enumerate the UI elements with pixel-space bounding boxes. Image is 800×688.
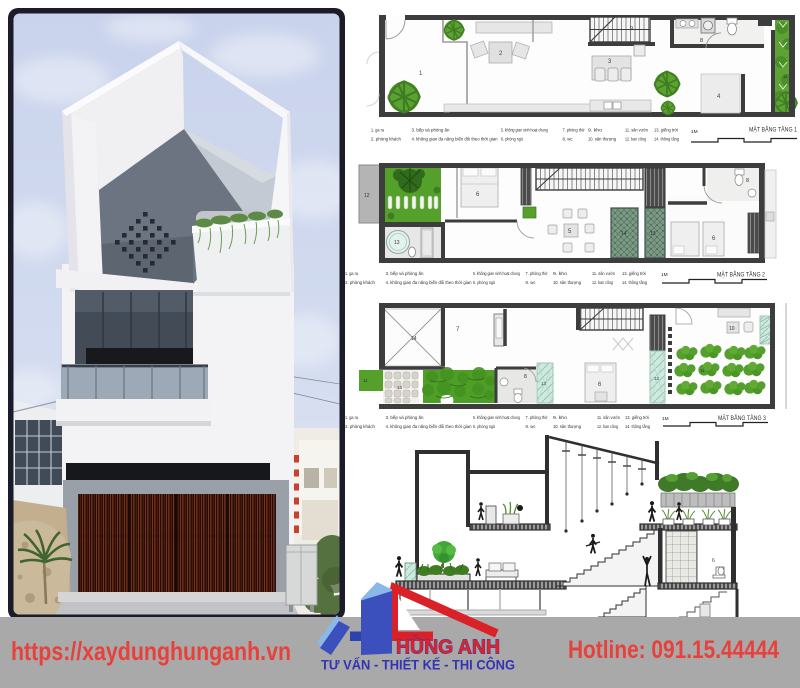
- svg-text:5. không gian sinh hoạt chung: 5. không gian sinh hoạt chung: [501, 128, 549, 133]
- svg-text:2. phòng khách: 2. phòng khách: [345, 424, 376, 429]
- svg-text:3. bếp và phòng ăn: 3. bếp và phòng ăn: [386, 271, 425, 276]
- svg-text:7. phòng thờ: 7. phòng thờ: [526, 415, 548, 420]
- svg-text:1. ga ra: 1. ga ra: [345, 271, 359, 276]
- svg-text:8: 8: [746, 178, 749, 184]
- svg-text:13: 13: [541, 381, 547, 386]
- svg-text:13. giếng trời: 13. giếng trời: [622, 271, 646, 276]
- svg-text:14. thông tầng: 14. thông tầng: [625, 424, 651, 429]
- svg-text:11. sân vườn: 11. sân vườn: [625, 128, 649, 133]
- svg-text:13: 13: [397, 385, 403, 390]
- svg-text:13. giếng trời: 13. giếng trời: [654, 128, 678, 133]
- svg-text:https://xaydunghunganh.vn: https://xaydunghunganh.vn: [11, 636, 291, 666]
- svg-text:4. không gian đa năng biến đổi: 4. không gian đa năng biến đổi theo thời…: [386, 424, 473, 429]
- svg-text:7. phòng thờ: 7. phòng thờ: [526, 271, 548, 276]
- svg-text:1M: 1M: [691, 129, 698, 135]
- svg-text:3. bếp và phòng ăn: 3. bếp và phòng ăn: [412, 128, 451, 133]
- svg-text:HÙNG ANH: HÙNG ANH: [396, 635, 500, 659]
- svg-text:11: 11: [700, 368, 705, 373]
- svg-text:14: 14: [411, 336, 417, 342]
- svg-text:14. thông tầng: 14. thông tầng: [622, 280, 648, 285]
- svg-text:11. sân vườn: 11. sân vườn: [597, 415, 621, 420]
- svg-text:8: 8: [524, 374, 527, 380]
- svg-text:6. phòng ngủ: 6. phòng ngủ: [501, 137, 524, 142]
- svg-text:8. wc: 8. wc: [526, 424, 536, 429]
- svg-text:14. thông tầng: 14. thông tầng: [654, 137, 680, 142]
- svg-text:10. sân thượng: 10. sân thượng: [553, 424, 582, 429]
- svg-text:5. không gian sinh hoạt chung: 5. không gian sinh hoạt chung: [473, 415, 521, 420]
- svg-text:6. phòng ngủ: 6. phòng ngủ: [473, 280, 496, 285]
- svg-text:12. ban công: 12. ban công: [597, 424, 619, 429]
- svg-text:5. không gian sinh hoạt chung: 5. không gian sinh hoạt chung: [473, 271, 521, 276]
- svg-text:8. wc: 8. wc: [526, 280, 536, 285]
- svg-text:10: 10: [729, 326, 735, 332]
- svg-text:11. sân vườn: 11. sân vườn: [592, 271, 616, 276]
- svg-text:9: 9: [630, 26, 633, 32]
- svg-text:13: 13: [654, 376, 660, 381]
- svg-text:11: 11: [783, 74, 788, 79]
- svg-text:11: 11: [363, 378, 368, 383]
- svg-text:9. kho: 9. kho: [588, 128, 603, 133]
- svg-text:13. giếng trời: 13. giếng trời: [625, 415, 649, 420]
- svg-text:2. phòng khách: 2. phòng khách: [345, 280, 376, 285]
- svg-text:TƯ VẤN - THIẾT KẾ - THI CÔNG: TƯ VẤN - THIẾT KẾ - THI CÔNG: [321, 656, 515, 673]
- svg-text:4. không gian đa năng biến đổi: 4. không gian đa năng biến đổi theo thời…: [386, 280, 473, 285]
- svg-text:8. wc: 8. wc: [563, 137, 573, 142]
- svg-text:14: 14: [621, 231, 627, 237]
- svg-text:13: 13: [394, 240, 400, 246]
- svg-text:1. ga ra: 1. ga ra: [345, 415, 359, 420]
- svg-text:6: 6: [712, 558, 715, 564]
- svg-text:1M: 1M: [662, 416, 669, 422]
- svg-text:2. phòng khách: 2. phòng khách: [371, 137, 402, 142]
- svg-text:12: 12: [364, 193, 370, 199]
- svg-text:10. sân thượng: 10. sân thượng: [553, 280, 582, 285]
- svg-text:9. kho: 9. kho: [553, 271, 568, 276]
- svg-text:1. ga ra: 1. ga ra: [371, 128, 385, 133]
- svg-text:6. phòng ngủ: 6. phòng ngủ: [473, 424, 496, 429]
- svg-text:8: 8: [700, 38, 703, 44]
- svg-text:1M: 1M: [661, 272, 668, 278]
- svg-text:Hotline: 091.15.44444: Hotline: 091.15.44444: [568, 636, 779, 664]
- svg-text:13: 13: [650, 231, 656, 237]
- svg-text:12. ban công: 12. ban công: [625, 137, 647, 142]
- svg-text:4. không gian đa năng biến đổi: 4. không gian đa năng biến đổi theo thời…: [412, 137, 499, 142]
- svg-text:10. sân thượng: 10. sân thượng: [588, 137, 617, 142]
- svg-text:9. kho: 9. kho: [553, 415, 568, 420]
- svg-text:12. ban công: 12. ban công: [592, 280, 614, 285]
- svg-text:3. bếp và phòng ăn: 3. bếp và phòng ăn: [386, 415, 425, 420]
- svg-text:7. phòng thờ: 7. phòng thờ: [563, 128, 585, 133]
